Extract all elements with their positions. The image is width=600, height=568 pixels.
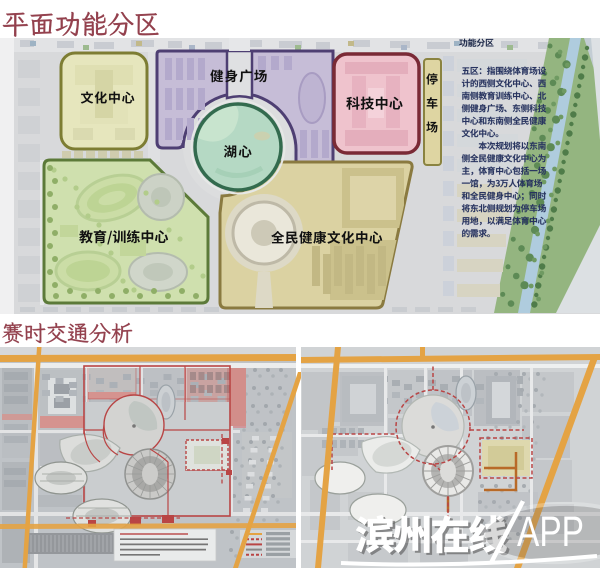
svg-text:APP: APP xyxy=(517,508,584,556)
